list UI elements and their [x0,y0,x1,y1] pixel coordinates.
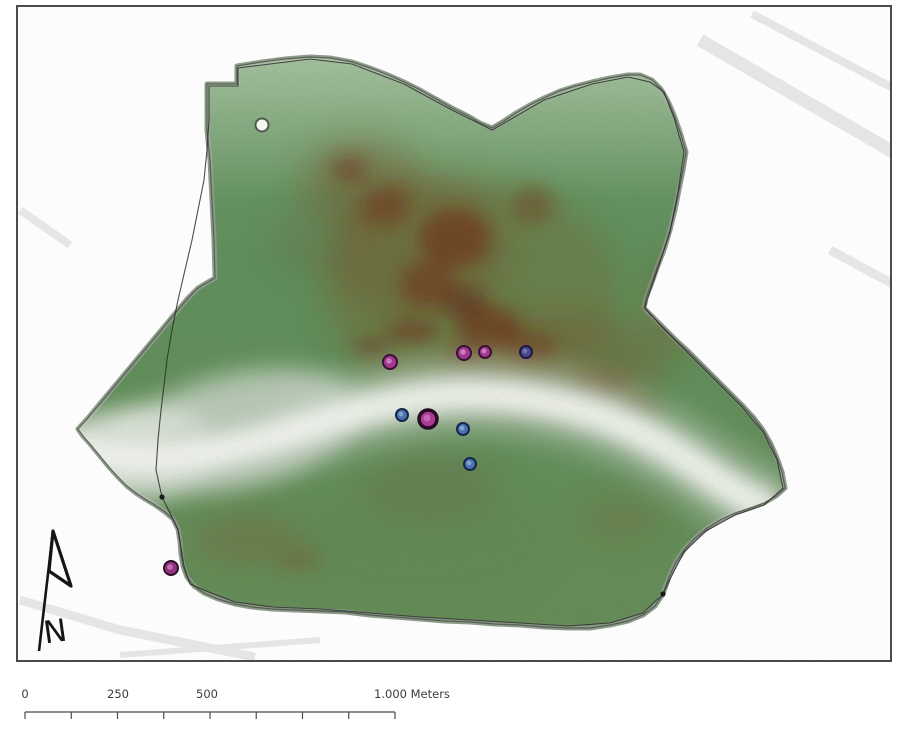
north-arrow-label: N [41,613,69,652]
scale-label-1000: 1.000 Meters [374,687,450,701]
boundary-node [159,494,164,499]
scale-label-0: 0 [21,687,28,701]
map-marker-center [460,349,466,355]
map-marker-center [467,461,472,466]
map-marker-center [423,414,430,421]
scale-bar-ticks [25,712,395,719]
scale-label-500: 500 [196,687,218,701]
map-document: N 0 250 500 1.000 Meters [0,0,900,734]
map-marker-center [167,564,173,570]
boundary-node [660,591,665,596]
map-marker-center [399,412,404,417]
map-marker-center [386,358,392,364]
scale-bar: 0 250 500 1.000 Meters [21,687,450,719]
map-marker-center [460,426,465,431]
map-marker-center [523,349,528,354]
map-canvas: N 0 250 500 1.000 Meters [0,0,900,734]
map-marker-white-reference-point [256,119,269,132]
scale-label-250: 250 [107,687,129,701]
map-marker-center [482,349,487,354]
